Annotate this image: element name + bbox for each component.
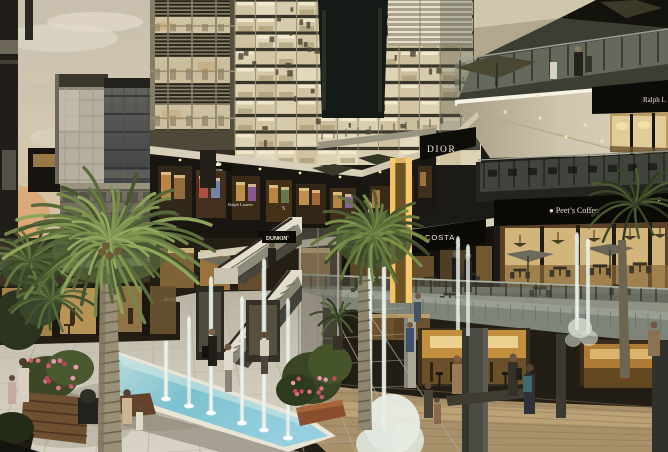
svg-text:Ralph L: Ralph L [643,96,666,104]
svg-text:DUNKIN': DUNKIN' [266,236,289,242]
svg-text:S: S [282,206,285,212]
svg-text:DIOR: DIOR [427,145,456,155]
svg-text:● Peet’s Coffee: ● Peet’s Coffee [549,206,599,215]
svg-text:Ralph Lauren: Ralph Lauren [228,202,253,207]
